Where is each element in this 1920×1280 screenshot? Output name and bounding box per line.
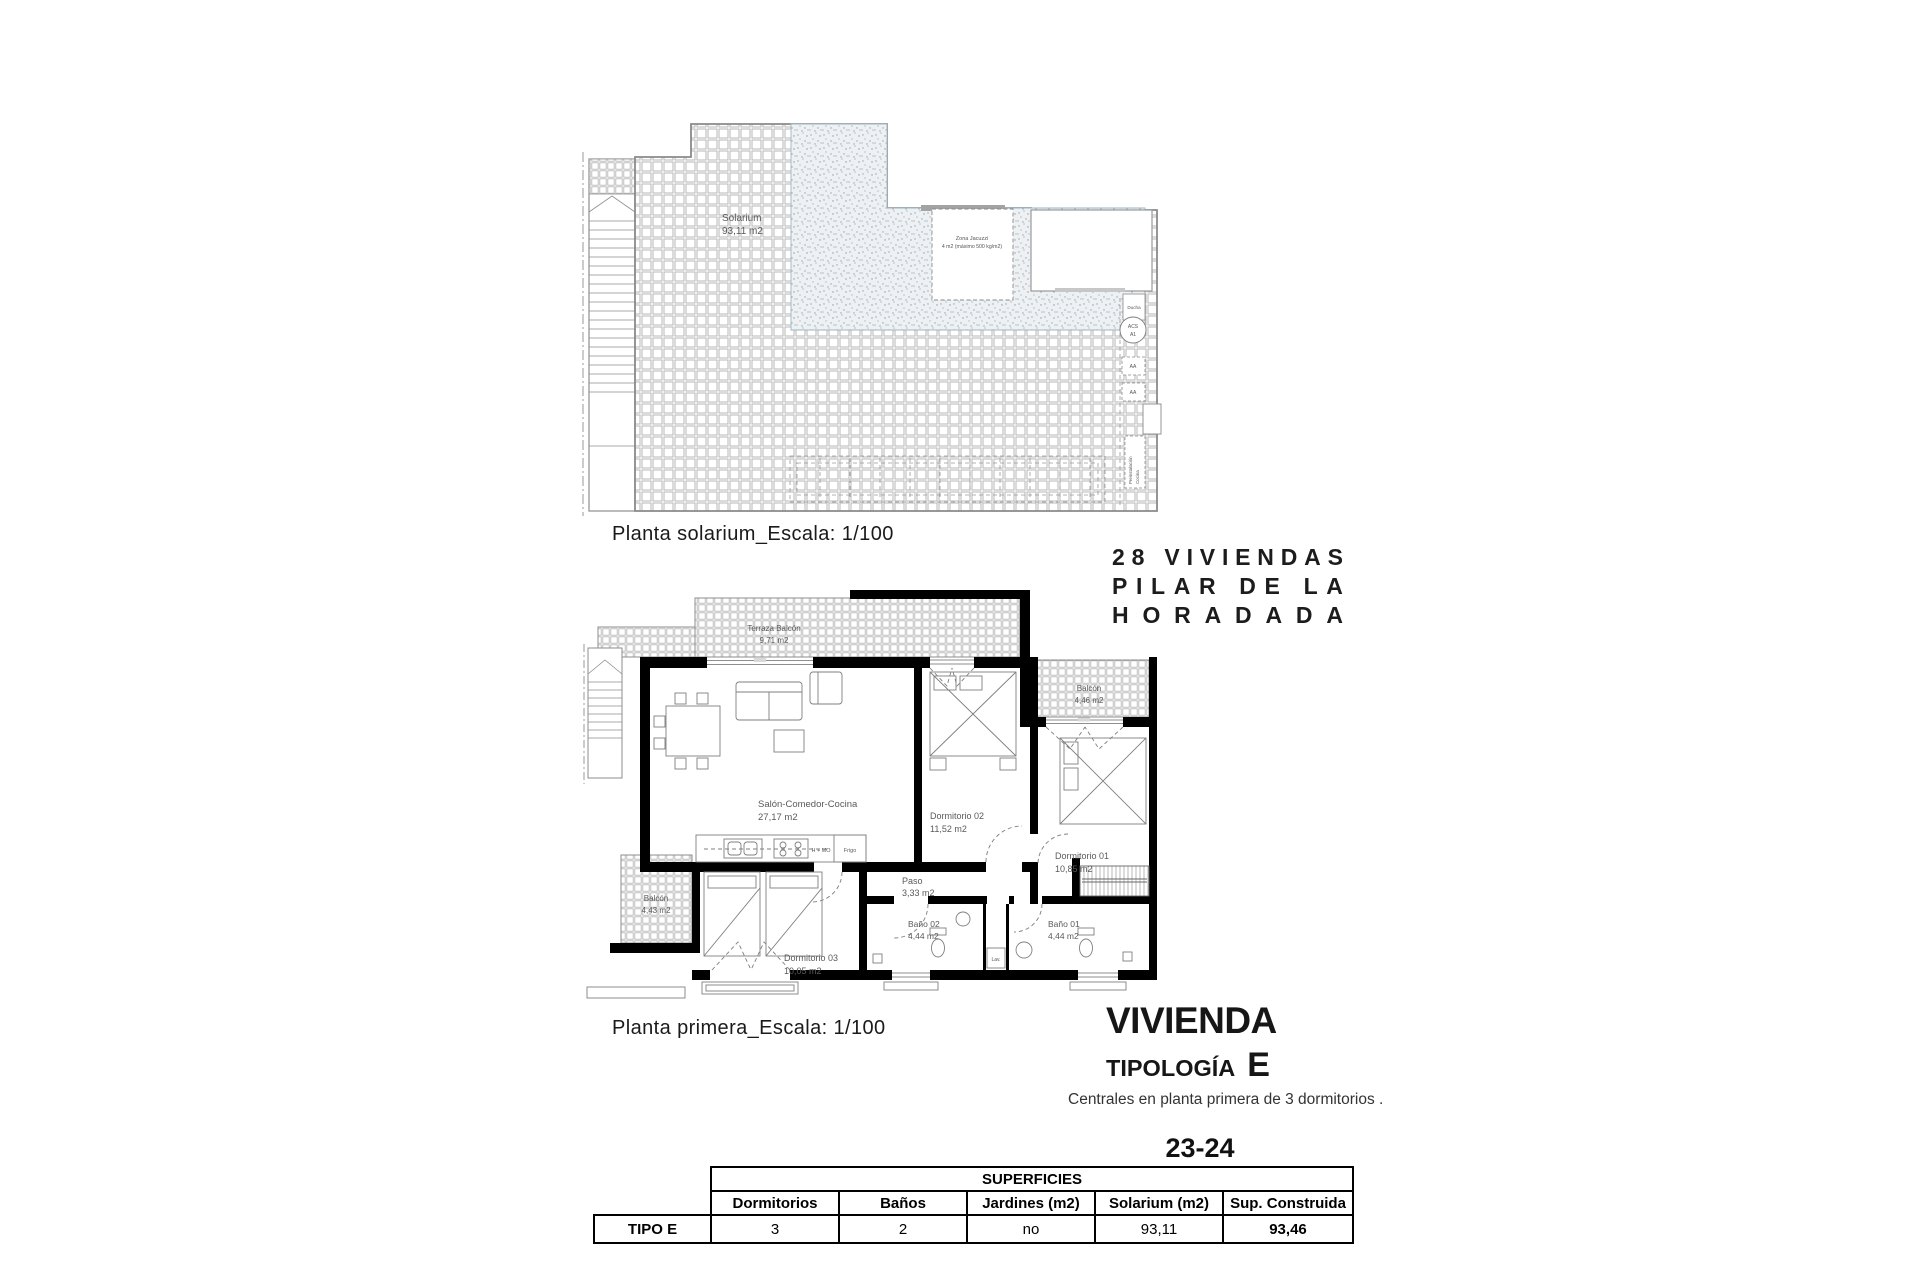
balcon-ne-label-area: 4,46 m2 <box>1075 696 1104 705</box>
table-spacer-cell <box>594 1191 711 1215</box>
typology-heading: VIVIENDA <box>1106 1000 1277 1042</box>
aa-label-2: AA <box>1130 390 1137 396</box>
value-banos: 2 <box>839 1215 967 1243</box>
column-header-dormitorios: Dormitorios <box>711 1191 839 1215</box>
acs-label: ACS <box>1128 324 1139 330</box>
jacuzzi-zone-box <box>932 209 1013 300</box>
bano01-label-name: Baño 01 <box>1048 919 1080 929</box>
balcon-ne-label-name: Balcón <box>1077 684 1101 693</box>
value-jardines: no <box>967 1215 1095 1243</box>
dormitorio03-label-name: Dormitorio 03 <box>784 953 838 963</box>
solarium-roof-room <box>1031 210 1152 291</box>
frigo-label: Frigo <box>844 848 857 854</box>
terraza-balcon: Terraza Balcón 9,71 m2 <box>598 598 1020 657</box>
terraza-label-area: 9,71 m2 <box>760 636 789 645</box>
column-header-jardines: Jardines (m2) <box>967 1191 1095 1215</box>
preinstalacion-label-line2: Cocina <box>1135 470 1140 484</box>
value-dormitorios: 3 <box>711 1215 839 1243</box>
table-spacer-cell <box>594 1167 711 1191</box>
solarium-stairs <box>589 159 635 511</box>
room-labels: Salón-Comedor-Cocina 27,17 m2 Dormitorio… <box>758 799 1109 976</box>
row-label-tipo-e: TIPO E <box>594 1215 711 1243</box>
column-header-solarium: Solarium (m2) <box>1095 1191 1223 1215</box>
table-title: SUPERFICIES <box>711 1167 1353 1191</box>
exterior-stairs <box>584 644 622 784</box>
horno-micro-label: H + MO <box>811 848 831 854</box>
preinstalacion-label-line1: Preinstalación <box>1128 456 1133 484</box>
dormitorio01-label-name: Dormitorio 01 <box>1055 851 1109 861</box>
solarium-label-area: 93,11 m2 <box>722 226 763 237</box>
dormitorio02-label-name: Dormitorio 02 <box>930 811 984 821</box>
typology-letter: E <box>1247 1046 1270 1084</box>
paso-label-name: Paso <box>902 876 923 886</box>
dormitorio02-label-area: 11,52 m2 <box>930 824 967 834</box>
lavadora-label: Lav. <box>991 957 1000 963</box>
roof-edge-cap-2 <box>1055 288 1125 292</box>
floor-plan-sheet: Zona Jacuzzi 4 m2 (máximo 500 kg/m2) Sol… <box>0 0 1920 1280</box>
balcon-noreste: Balcón 4,46 m2 <box>1030 660 1149 717</box>
aa-label-1: AA <box>1130 364 1137 370</box>
solarium-label-name: Solarium <box>722 213 761 224</box>
surfaces-table: SUPERFICIES Dormitorios Baños Jardines (… <box>593 1166 1354 1244</box>
first-floor-caption: Planta primera_Escala: 1/100 <box>612 1017 886 1040</box>
bano02-label-name: Baño 02 <box>908 919 940 929</box>
typology-subheading: TIPOLOGÍA <box>1106 1055 1235 1081</box>
dormitorio01-label-area: 10,85 m2 <box>1055 864 1093 874</box>
jacuzzi-zone-label-line2: 4 m2 (máximo 500 kg/m2) <box>942 244 1003 250</box>
bano02-label-area: 4,44 m2 <box>908 931 939 941</box>
unit-numbers: 23-24 <box>1158 1133 1242 1164</box>
value-sup-construida: 93,46 <box>1223 1215 1353 1243</box>
a1-label: A1 <box>1130 332 1136 338</box>
solarium-caption: Planta solarium_Escala: 1/100 <box>612 523 894 546</box>
ducha-label: Ducha <box>1127 305 1141 310</box>
first-floor-plan-drawing: Terraza Balcón 9,71 m2 Balcón 4,46 m2 Ba… <box>578 588 1178 1012</box>
column-header-sup-construida: Sup. Construida <box>1223 1191 1353 1215</box>
paso-label-area: 3,33 m2 <box>902 888 935 898</box>
typology-subheading-row: TIPOLOGÍAE <box>1106 1046 1270 1085</box>
balcon-sw-label-area: 4,43 m2 <box>642 906 671 915</box>
solarium-plan-drawing: Zona Jacuzzi 4 m2 (máximo 500 kg/m2) Sol… <box>575 106 1165 522</box>
project-title-line1: 28 VIVIENDAS <box>1112 543 1343 572</box>
salon-label-name: Salón-Comedor-Cocina <box>758 799 858 810</box>
column-header-banos: Baños <box>839 1191 967 1215</box>
salon-label-area: 27,17 m2 <box>758 812 798 823</box>
typology-description: Centrales en planta primera de 3 dormito… <box>1068 1091 1383 1109</box>
dormitorio03-label-area: 10,05 m2 <box>784 966 822 976</box>
value-solarium: 93,11 <box>1095 1215 1223 1243</box>
acs-circle <box>1120 317 1146 343</box>
terraza-label-name: Terraza Balcón <box>747 624 800 633</box>
bano01-label-area: 4,44 m2 <box>1048 931 1079 941</box>
balcon-sw-label-name: Balcón <box>644 894 668 903</box>
jacuzzi-zone-label-line1: Zona Jacuzzi <box>956 236 988 242</box>
wall-notch <box>1143 404 1161 434</box>
